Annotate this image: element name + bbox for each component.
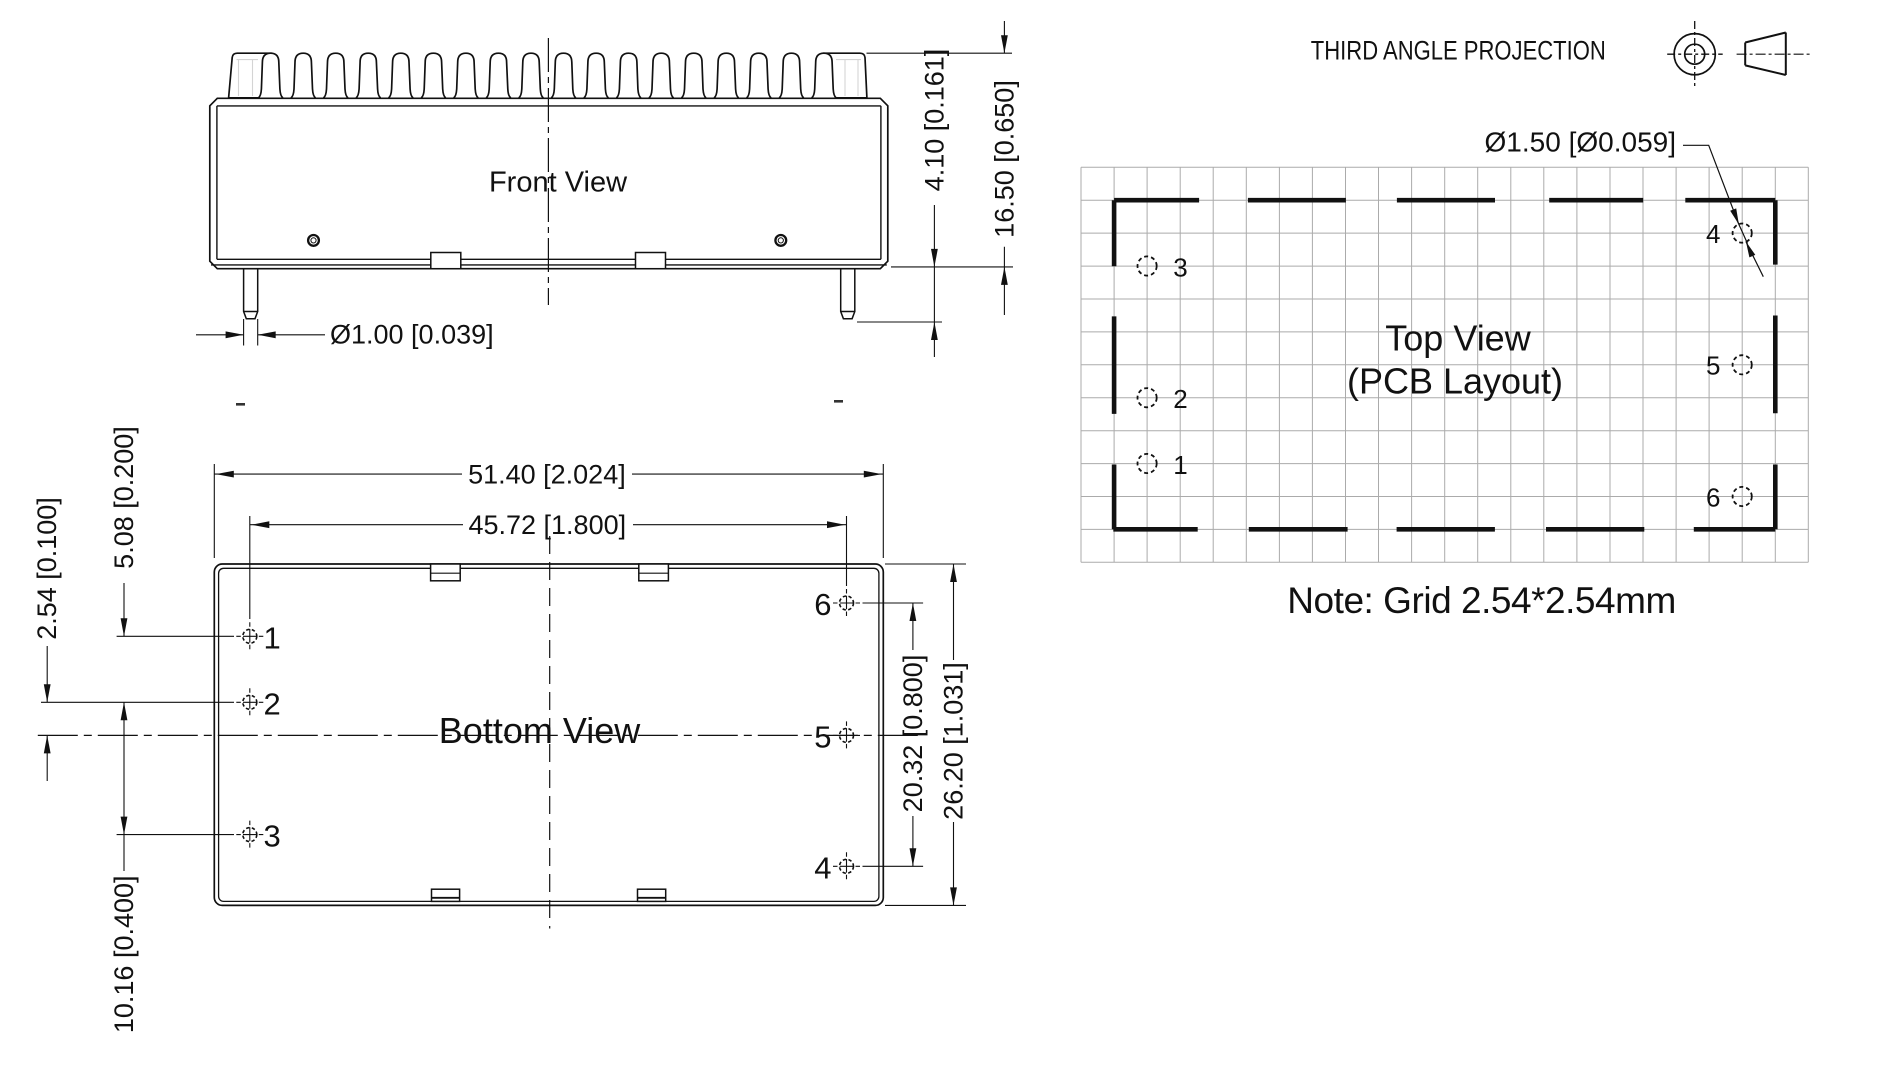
svg-text:16.50 [0.650]: 16.50 [0.650]: [989, 80, 1019, 238]
svg-text:1: 1: [1173, 450, 1187, 480]
svg-text:Front View: Front View: [489, 167, 628, 199]
svg-text:6: 6: [814, 587, 831, 622]
svg-text:5: 5: [814, 719, 831, 754]
svg-text:THIRD ANGLE PROJECTION: THIRD ANGLE PROJECTION: [1311, 36, 1606, 66]
svg-text:Bottom View: Bottom View: [439, 710, 641, 751]
svg-text:51.40 [2.024]: 51.40 [2.024]: [468, 460, 626, 490]
svg-text:(PCB Layout): (PCB Layout): [1347, 361, 1563, 402]
svg-text:Top View: Top View: [1385, 318, 1531, 359]
svg-text:3: 3: [1173, 252, 1187, 282]
svg-text:1: 1: [264, 620, 281, 655]
svg-text:4.10 [0.161]: 4.10 [0.161]: [919, 49, 949, 192]
svg-text:2: 2: [264, 686, 281, 721]
svg-text:2: 2: [1173, 384, 1187, 414]
svg-text:Ø1.00 [0.039]: Ø1.00 [0.039]: [330, 320, 494, 350]
svg-text:45.72 [1.800]: 45.72 [1.800]: [468, 510, 626, 540]
svg-text:2.54 [0.100]: 2.54 [0.100]: [32, 497, 62, 640]
svg-text:3: 3: [264, 819, 281, 854]
svg-text:4: 4: [814, 850, 831, 885]
svg-text:20.32 [0.800]: 20.32 [0.800]: [898, 655, 928, 813]
svg-text:5: 5: [1706, 351, 1720, 381]
svg-text:Ø1.50 [Ø0.059]: Ø1.50 [Ø0.059]: [1485, 127, 1676, 158]
svg-text:5.08 [0.200]: 5.08 [0.200]: [109, 426, 139, 569]
svg-text:Note: Grid 2.54*2.54mm: Note: Grid 2.54*2.54mm: [1287, 580, 1676, 621]
svg-text:26.20 [1.031]: 26.20 [1.031]: [939, 662, 969, 820]
svg-text:4: 4: [1706, 219, 1720, 249]
svg-text:6: 6: [1706, 482, 1720, 512]
svg-text:10.16 [0.400]: 10.16 [0.400]: [109, 875, 139, 1033]
